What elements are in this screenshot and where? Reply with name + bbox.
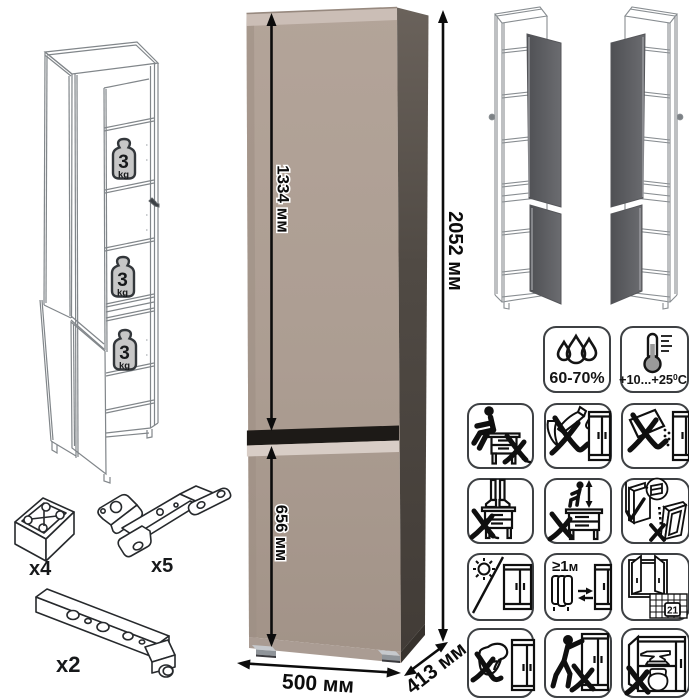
svg-text:≥1м: ≥1м — [552, 558, 578, 575]
svg-text:x4: x4 — [29, 558, 52, 580]
svg-text:kg: kg — [119, 361, 130, 372]
svg-text:60-70%: 60-70% — [549, 370, 604, 387]
svg-text:21: 21 — [667, 606, 679, 617]
svg-text:656 мм: 656 мм — [272, 505, 290, 562]
svg-text:2052 мм: 2052 мм — [444, 211, 466, 291]
svg-text:+10...+250C: +10...+250C — [619, 372, 687, 387]
svg-text:x2: x2 — [56, 652, 80, 677]
svg-text:500 мм: 500 мм — [281, 670, 354, 697]
svg-text:x5: x5 — [151, 555, 173, 577]
svg-text:kg: kg — [117, 288, 128, 299]
svg-text:1334 мм: 1334 мм — [274, 165, 293, 233]
svg-text:kg: kg — [118, 170, 129, 181]
